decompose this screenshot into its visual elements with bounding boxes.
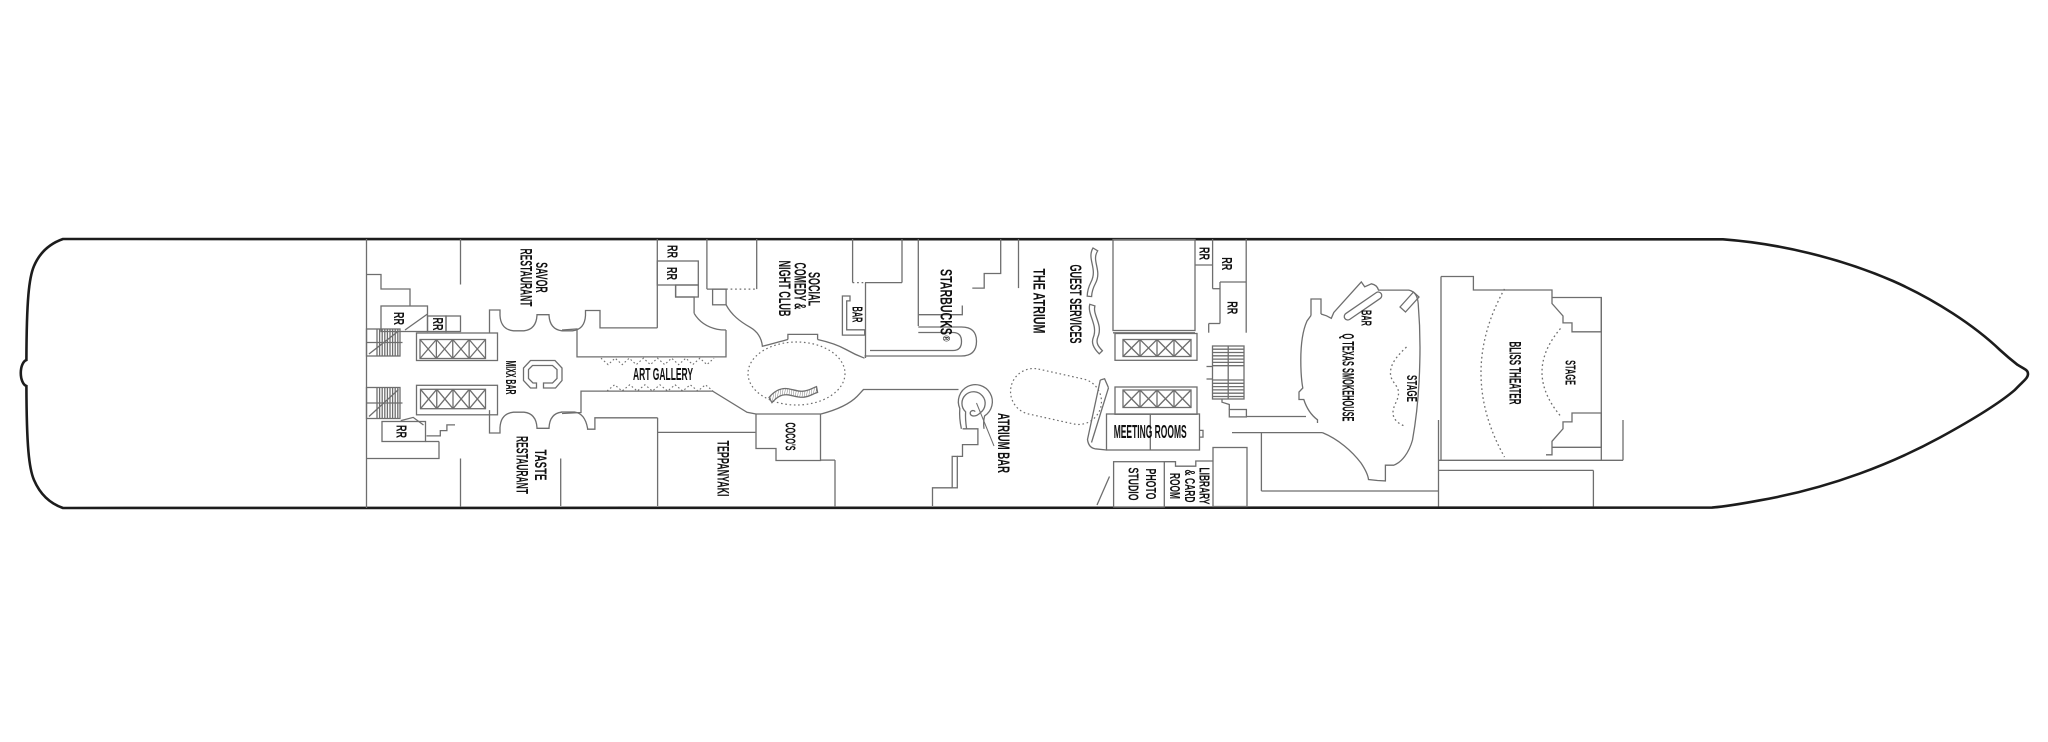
- svg-text:MIXX BAR: MIXX BAR: [502, 361, 519, 395]
- svg-text:PHOTO: PHOTO: [1142, 469, 1159, 500]
- svg-text:TASTE: TASTE: [531, 450, 549, 481]
- svg-text:RR: RR: [1218, 257, 1234, 270]
- svg-text:RR: RR: [1196, 247, 1212, 260]
- svg-text:COCO'S: COCO'S: [782, 423, 799, 451]
- svg-text:BLISS THEATER: BLISS THEATER: [1506, 342, 1524, 405]
- svg-text:MEETING ROOMS: MEETING ROOMS: [1114, 422, 1187, 442]
- svg-text:BAR: BAR: [849, 307, 865, 323]
- svg-text:TEPPANYAKI: TEPPANYAKI: [713, 441, 731, 497]
- svg-text:STARBUCKS: STARBUCKS: [937, 269, 955, 335]
- svg-text:RESTAURANT: RESTAURANT: [517, 249, 535, 307]
- svg-text:STAGE: STAGE: [1403, 375, 1420, 402]
- svg-text:Q TEXAS SMOKEHOUSE: Q TEXAS SMOKEHOUSE: [1339, 334, 1357, 422]
- svg-text:RR: RR: [664, 245, 680, 258]
- svg-text:ATRIUM BAR: ATRIUM BAR: [994, 413, 1012, 473]
- svg-text:RR: RR: [663, 267, 679, 280]
- svg-text:ART GALLERY: ART GALLERY: [633, 364, 693, 384]
- svg-text:RR: RR: [1224, 301, 1240, 314]
- svg-text:THE ATRIUM: THE ATRIUM: [1030, 269, 1048, 334]
- svg-text:STUDIO: STUDIO: [1125, 468, 1142, 501]
- svg-text:RR: RR: [390, 312, 406, 325]
- svg-text:NIGHT CLUB: NIGHT CLUB: [775, 261, 793, 317]
- svg-text:®: ®: [940, 336, 951, 343]
- svg-text:GUEST SERVICES: GUEST SERVICES: [1066, 265, 1084, 344]
- svg-text:RESTAURANT: RESTAURANT: [513, 436, 531, 494]
- svg-text:BAR: BAR: [1358, 310, 1374, 326]
- svg-text:ROOM: ROOM: [1166, 473, 1183, 499]
- svg-text:STAGE: STAGE: [1561, 360, 1578, 385]
- svg-text:RR: RR: [393, 425, 409, 438]
- svg-text:RR: RR: [429, 318, 445, 331]
